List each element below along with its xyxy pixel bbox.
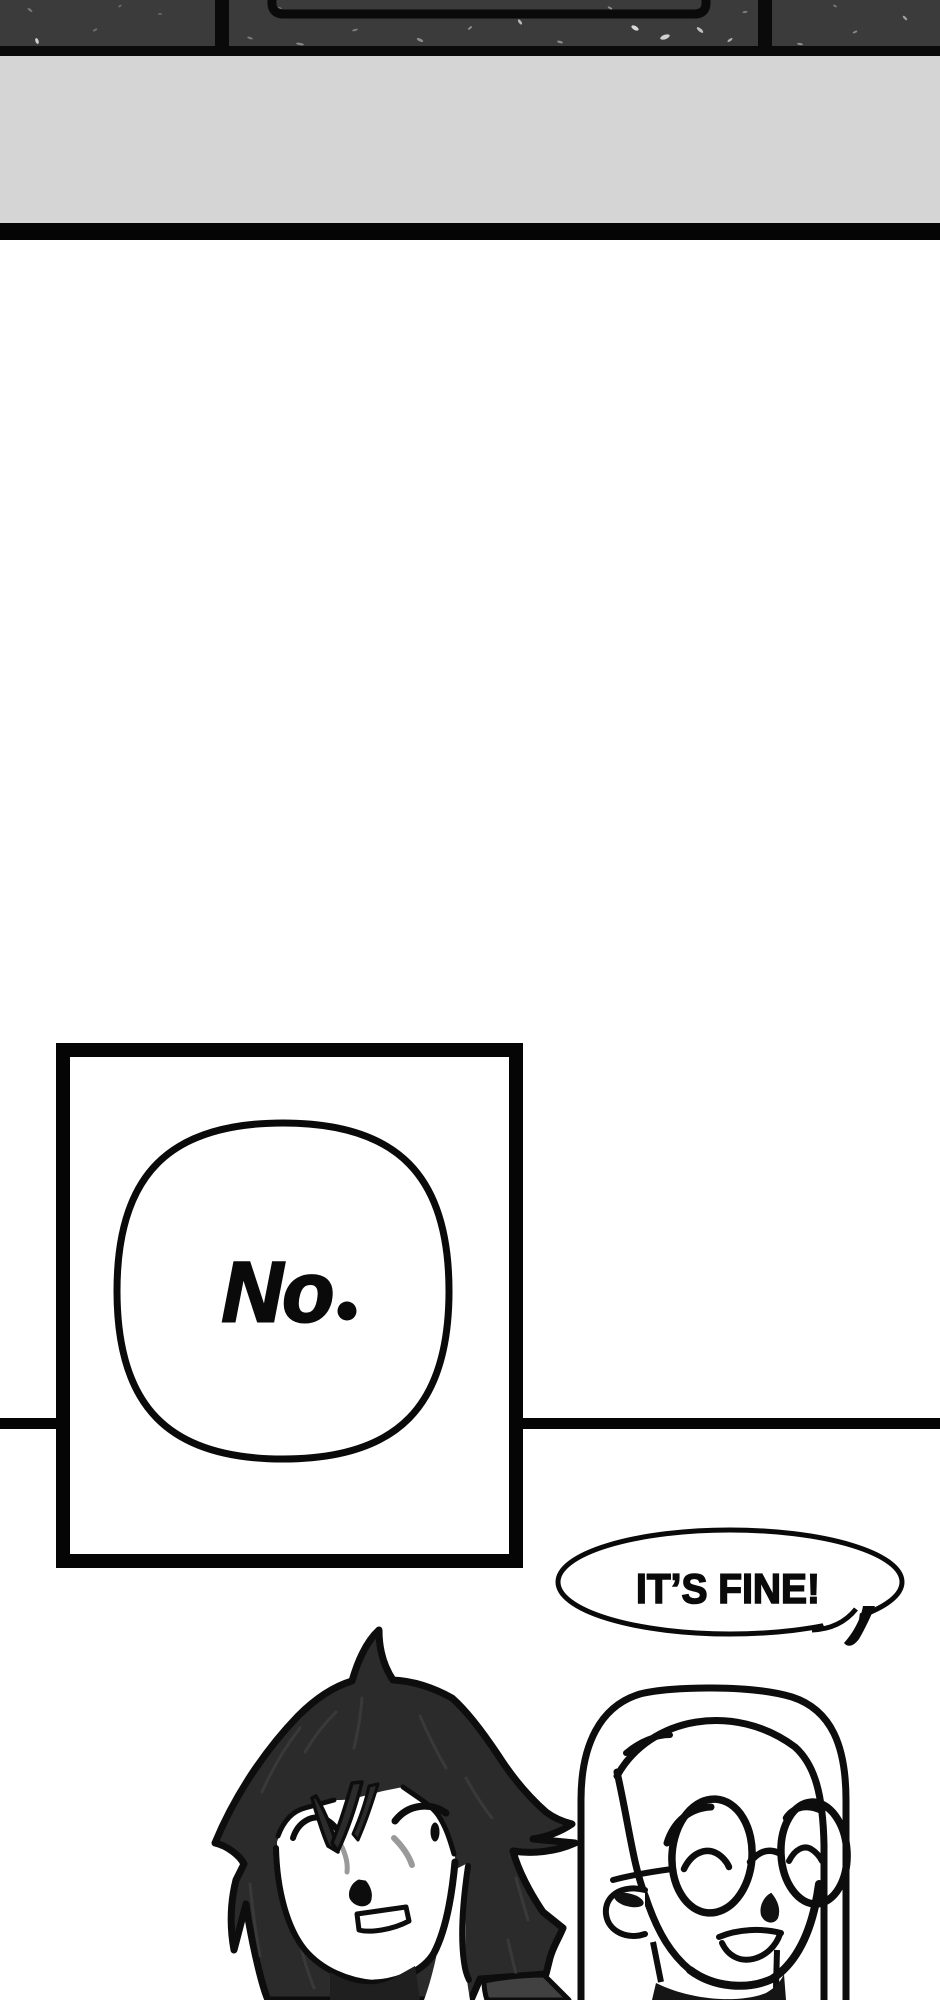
svg-text:No: No bbox=[222, 1245, 334, 1339]
svg-text:IT’S FINE!: IT’S FINE! bbox=[636, 1565, 820, 1612]
